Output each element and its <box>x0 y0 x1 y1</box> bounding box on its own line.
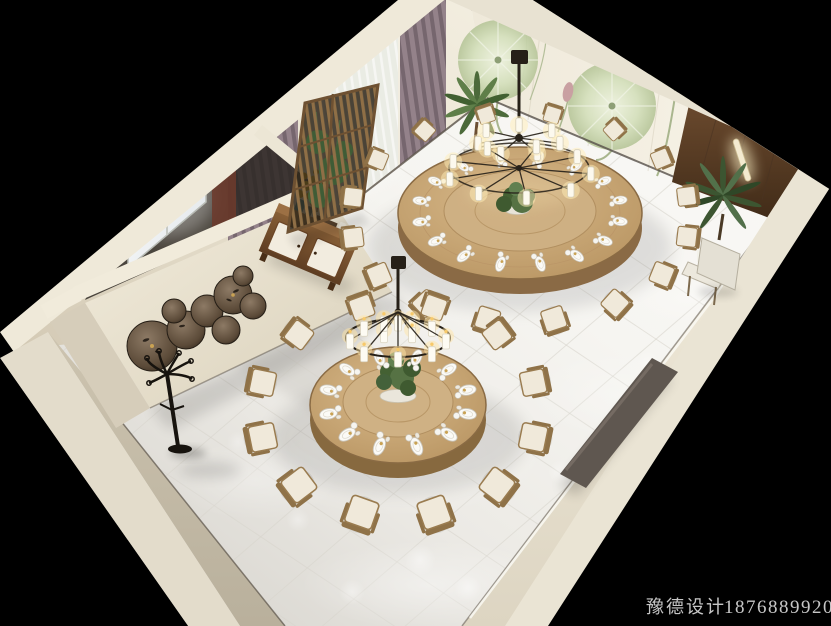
dining-room-render: 豫德设计 18768899200 <box>0 0 831 626</box>
studio-name: 豫德设计 <box>646 597 726 617</box>
scene-svg: 豫德设计 18768899200 <box>0 0 831 626</box>
watermark: 豫德设计 18768899200 <box>646 597 831 618</box>
phone-number: 18768899200 <box>724 597 831 618</box>
